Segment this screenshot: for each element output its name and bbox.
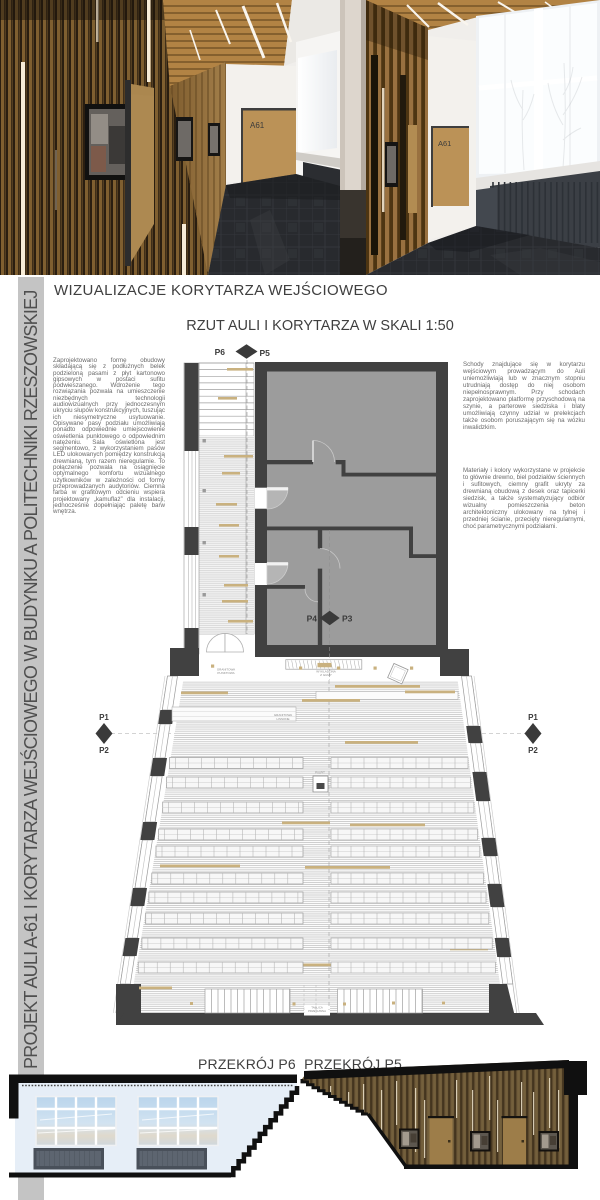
svg-text:PUNKTOWA: PUNKTOWA [217, 671, 234, 675]
svg-text:P2: P2 [528, 746, 538, 755]
svg-text:P6: P6 [215, 347, 226, 357]
svg-text:P3: P3 [342, 614, 353, 624]
svg-text:PRZESUWNA: PRZESUWNA [308, 1009, 326, 1013]
svg-text:P1: P1 [528, 713, 538, 722]
svg-text:LISSONE: LISSONE [276, 717, 289, 721]
svg-text:P4: P4 [307, 614, 318, 624]
svg-text:P5: P5 [260, 348, 271, 358]
svg-text:A61: A61 [438, 139, 451, 148]
svg-text:P1: P1 [99, 713, 109, 722]
svg-text:P2: P2 [99, 746, 109, 755]
svg-text:A61: A61 [250, 121, 265, 130]
svg-text:PULPIT: PULPIT [315, 771, 325, 775]
svg-text:Z GUMY: Z GUMY [320, 673, 332, 677]
